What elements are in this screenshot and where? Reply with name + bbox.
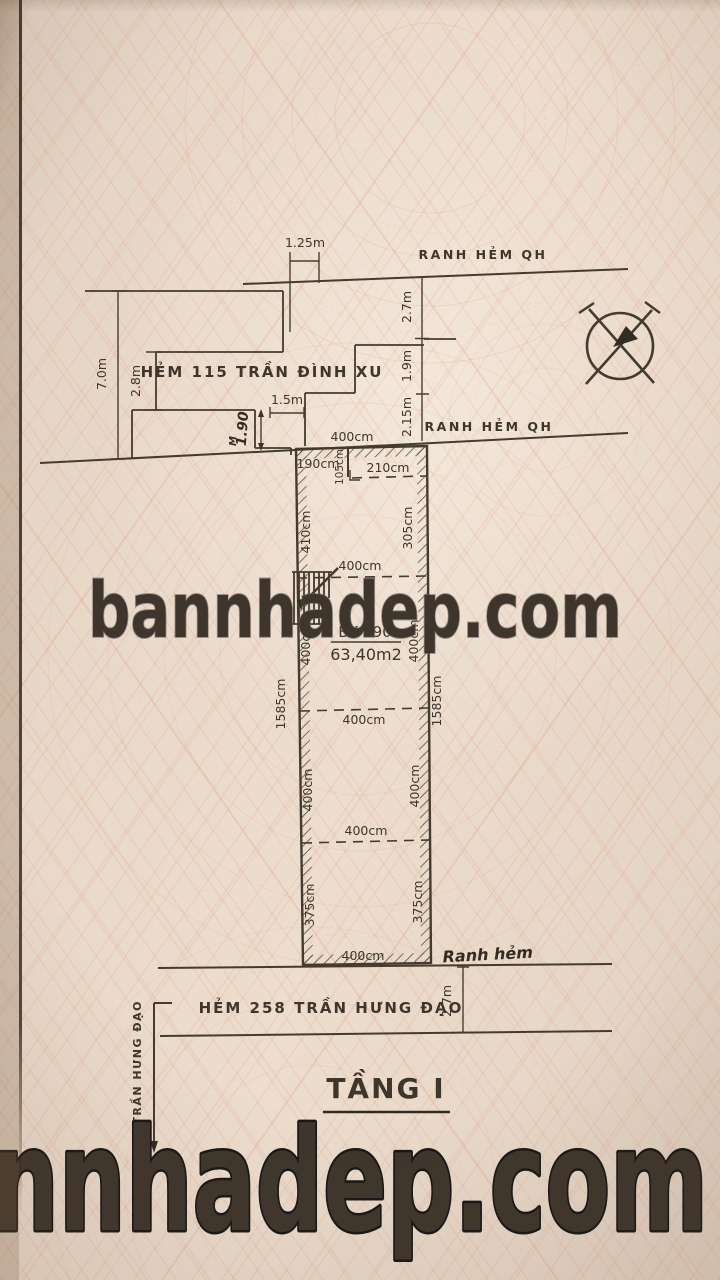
dim-2-15m: 2.15m xyxy=(399,397,414,437)
watermark-center: bannhadep.com xyxy=(88,567,622,656)
division2-width: 400cm xyxy=(343,712,386,727)
parcel-top-width: 400cm xyxy=(331,429,374,444)
side-410: 410cm xyxy=(298,511,313,554)
overall-1585-left: 1585cm xyxy=(273,679,288,730)
dim-2-7m-bottom: 2.7m xyxy=(439,985,454,1017)
notch-rest: 210cm xyxy=(367,460,410,475)
compass-icon xyxy=(579,302,660,384)
dim-2-7m-top: 2.7m xyxy=(399,291,414,323)
handwritten-m: M xyxy=(228,436,239,446)
side-375-right: 375cm xyxy=(410,881,425,924)
side-305: 305cm xyxy=(400,507,415,550)
handwritten-ranh-hem: Ranh hẻm xyxy=(442,943,533,967)
side-375-left: 375cm xyxy=(302,884,317,927)
side-400-right-b: 400cm xyxy=(407,765,422,808)
division3-width: 400cm xyxy=(345,823,388,838)
street-name: HẺM 258 TRẦN HƯNG ĐẠO xyxy=(199,996,464,1017)
ranh-hem-qh-top-label: RANH HẺM QH xyxy=(419,246,548,262)
dim-1-9m: 1.9m xyxy=(399,350,414,382)
dim-7-0m: 7.0m xyxy=(94,358,109,390)
notch-depth: 105cm xyxy=(334,449,346,485)
alley-115-name: HẺM 115 TRẦN ĐÌNH XU xyxy=(141,360,384,381)
dim-1-5m: 1.5m xyxy=(271,392,303,407)
overall-1585-right: 1585cm xyxy=(429,676,444,727)
side-400-left-b: 400cm xyxy=(300,769,315,812)
ranh-hem-qh-mid-label: RANH HẺM QH xyxy=(425,418,554,434)
watermark-bottom: nnhadep.com xyxy=(0,1099,708,1264)
parcel-bottom-width: 400cm xyxy=(342,948,385,963)
dim-1-25m: 1.25m xyxy=(285,235,325,250)
scanned-plan-photo: 1.25m RANH HẺM QH 2.7m 7.0m 2.8m HẺM 115… xyxy=(0,0,720,1280)
